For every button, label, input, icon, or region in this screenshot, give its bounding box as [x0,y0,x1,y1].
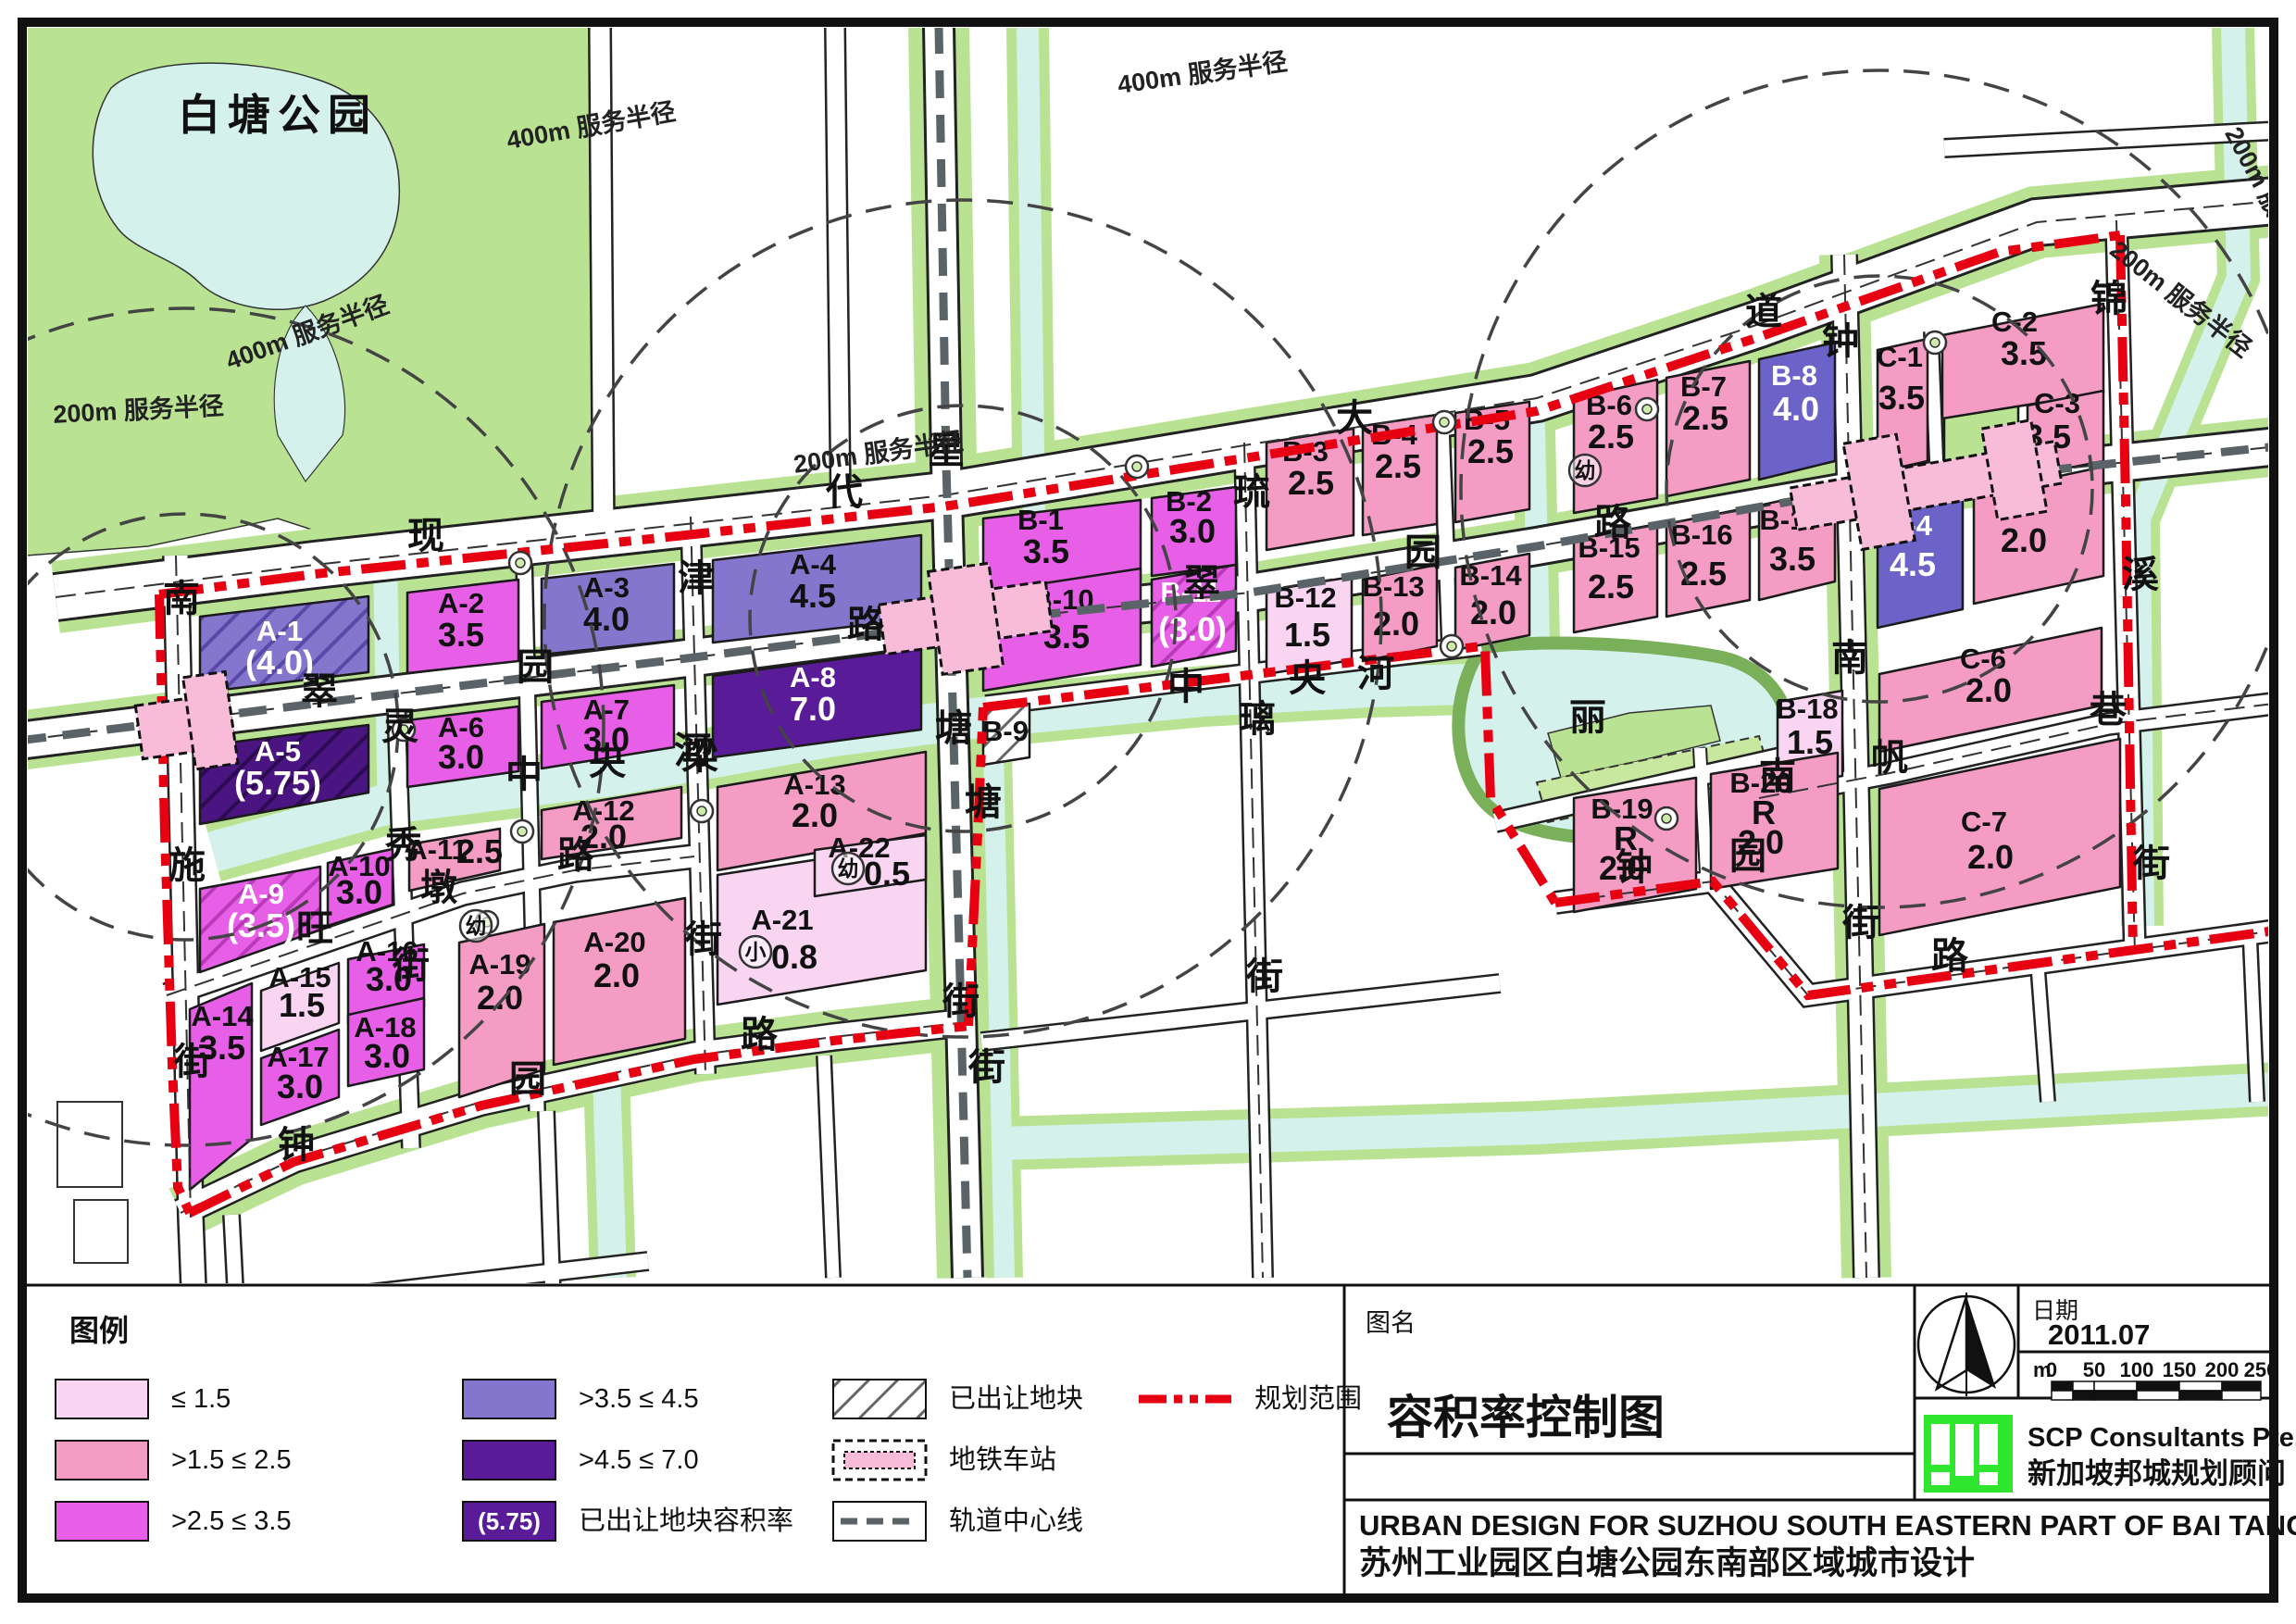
map-canvas: A-1(4.0)A-23.5A-34.0A-44.5A-5(5.75)A-63.… [0,0,2296,1624]
parcel-far-C-5: 2.0 [2001,521,2047,559]
banner-cn: 苏州工业园区白塘公园东南部区域城市设计 [1359,1545,1975,1581]
road-name-char-36: 街 [942,981,980,1022]
parcel-far-A-2: 3.5 [438,616,484,654]
road-name-char-50: 塘 [965,782,1002,823]
parcel-far-A-19: 2.0 [477,979,523,1017]
far-control-map-sheet: { "map": { "park_label": "白塘公园", "parcel… [0,0,2296,1624]
parcel-code-C-1: C-1 [1877,341,1923,373]
road-name-char-48: 巷 [2089,690,2128,731]
parcel-far-A-3: 4.0 [583,600,630,638]
parcel-code-C-2: C-2 [1991,306,2038,338]
road-name-char-4: 翠 [301,671,338,712]
facility-badge-text-A-22: 幼 [838,856,859,881]
legend-label-rail: 轨道中心线 [949,1505,1083,1536]
parcel-far-A-13: 2.0 [792,796,838,834]
legend-label-sold-far: 已出让地块容积率 [579,1505,793,1536]
road-name-char-16: 旺 [296,908,333,949]
parcel-code-B-16: B-16 [1670,518,1732,551]
legend-label-le15: ≤ 1.5 [171,1384,231,1414]
svg-text:250: 250 [2244,1358,2278,1381]
parcel-code-A-2: A-2 [438,587,484,619]
legend-label-25-35: >2.5 ≤ 3.5 [171,1506,292,1536]
legend-label-45-70: >4.5 ≤ 7.0 [579,1445,699,1475]
parcel-code-A-8: A-8 [790,661,836,693]
road-name-char-28: 灵 [381,706,418,747]
facility-badge-text-B-6: 幼 [1575,458,1596,482]
parcel-far-A-17: 3.0 [277,1068,323,1106]
road-name-char-13: 中 [1167,667,1204,707]
facility-badge-text-A-19: 幼 [466,914,487,938]
svg-text:200: 200 [2205,1358,2240,1381]
road-name-char-5: 园 [517,647,554,688]
parcel-far-A-10: 3.0 [336,873,382,911]
parcel-code-B-8: B-8 [1771,359,1817,392]
drawing-name-label: 图名 [1366,1309,1416,1337]
road-name-char-32: 梁 [681,736,718,777]
legend-label-35-45: >3.5 ≤ 4.5 [579,1384,699,1414]
road-name-char-10: 中 [505,755,543,795]
parcel-far-A-15: 1.5 [279,986,325,1024]
park-label: 白塘公园 [178,91,378,139]
road-name-char-18: 路 [557,835,595,876]
drawing-title: 容积率控制图 [1387,1392,1665,1443]
svg-text:100: 100 [2120,1358,2154,1381]
parcel-far-C-7: 2.0 [1967,838,2014,876]
parcel-far-C-2: 3.5 [2001,334,2047,372]
parcel-code-B-9: B-9 [982,715,1029,747]
parcel-far-B-1: 3.5 [1023,532,1069,570]
road-name-char-42: 街 [1841,903,1879,943]
legend-label-15-25: >1.5 ≤ 2.5 [171,1445,292,1475]
road-name-char-31: 津 [678,558,715,599]
bus-stop-dot-0 [516,558,525,568]
legend-title: 图例 [69,1314,129,1347]
parcel-code-A-1: A-1 [256,615,303,647]
parcel-far-B-17: 3.5 [1769,540,1816,578]
road-name-char-49: 丽 [1569,697,1606,738]
parcel-far-C-6: 2.0 [1965,671,2012,709]
banner-en: URBAN DESIGN FOR SUZHOU SOUTH EASTERN PA… [1359,1509,2296,1542]
parcel-far-A-21: 0.8 [771,938,817,976]
parcel-far-A-22: 0.5 [864,855,910,893]
date-value: 2011.07 [2048,1318,2150,1351]
scp-logo [1924,1415,2013,1493]
legend-label-boundary: 规划范围 [1254,1383,1362,1414]
road-name-char-39: 街 [1245,956,1283,997]
legend-label-station: 地铁车站 [949,1444,1056,1475]
road-name-char-6: 路 [847,605,885,645]
road-name-char-20: 园 [509,1059,546,1100]
parcel-code-A-9: A-9 [238,878,284,910]
road-name-char-24: 路 [1931,936,1969,977]
road-name-char-9: 路 [1594,503,1632,543]
parcel-far-B-2: 3.0 [1169,512,1216,550]
parcel-far-B-3: 2.5 [1288,464,1334,502]
parcel-far-A-20: 2.0 [593,956,640,994]
road-name-char-14: 央 [1289,658,1327,699]
parcel-far-A-6: 3.0 [438,738,484,776]
road-name-char-29: 秀 [384,825,422,866]
road-name-char-1: 代 [825,472,863,513]
legend-swatch-station-inner [844,1452,915,1468]
bus-stop-dot-10 [697,806,706,816]
parcel-far-C-4: 4.5 [1890,545,1936,583]
parcel-far-B-12: 1.5 [1284,616,1330,654]
company-en: SCP Consultants Pte. Ltd. [2028,1423,2296,1453]
parcel-far-B-7: 2.5 [1682,399,1728,437]
road-name-char-41: 南 [1831,638,1868,679]
bus-stop-dot-3 [1132,462,1142,471]
legend: 图例 ≤ 1.5 >1.5 ≤ 2.5 >2.5 ≤ 3.5 >3.5 ≤ 4.… [56,1314,1362,1541]
svg-text:0: 0 [2046,1358,2057,1381]
road-name-char-44: 溪 [2122,555,2159,595]
road-name-char-26: 施 [168,845,206,886]
parcel-far-A-8: 7.0 [790,690,836,728]
parcel-code-C-6: C-6 [1960,643,2006,675]
svg-text:150: 150 [2163,1358,2197,1381]
parcel-code-A-4: A-4 [790,548,837,581]
legend-swatch-sold-parcel [833,1380,926,1418]
parcel-far-B-16: 2.5 [1680,555,1727,593]
bus-stop-dot-1 [518,827,527,836]
parcel-code-C-3: C-3 [2034,387,2080,419]
svg-text:50: 50 [2083,1358,2105,1381]
parcel-code-A-5: A-5 [255,735,301,768]
parcel-far-B-4: 2.5 [1375,447,1421,485]
road-name-char-40: 钟 [1822,321,1859,362]
road-name-char-7: 翠 [1183,563,1220,604]
bus-stop-dot-4 [1440,418,1449,427]
parcel-far-B-5: 2.5 [1467,432,1514,470]
parcel-code-A-21: A-21 [751,904,813,936]
bus-stop-dot-8 [1930,338,1940,347]
bus-stop-dot-6 [1642,405,1652,414]
facility-badge-text-A-21: 小 [745,940,767,964]
road-name-char-3: 道 [1745,292,1782,332]
parcel-code-B-13: B-13 [1362,570,1424,603]
north-compass [1918,1293,2015,1396]
road-name-char-30: 街 [392,945,430,986]
parcel-code-A-20: A-20 [583,926,645,958]
road-name-char-33: 街 [684,919,722,960]
road-name-char-22: 钟 [1616,847,1653,888]
road-name-char-21: 路 [741,1015,779,1056]
parcel-code-B-1: B-1 [1017,504,1064,536]
road-name-char-45: 街 [2132,843,2170,884]
road-name-char-43: 锦 [2090,279,2128,319]
parcel-far-C-1: 3.5 [1878,379,1925,417]
legend-swatch-25-35 [56,1502,148,1541]
road-name-char-17: 墩 [420,868,457,908]
parcel-far-A-18: 3.0 [364,1037,410,1075]
road-name-char-35: 塘 [935,708,972,749]
parcel-far-A-5: (5.75) [234,764,321,802]
parcel-code-A-14: A-14 [191,1000,254,1032]
road-name-char-11: 央 [589,742,627,782]
parcel-far-B-6: 2.5 [1588,418,1634,456]
legend-label-sold-parcel: 已出让地块 [949,1383,1083,1414]
parcel-code-C-7: C-7 [1961,806,2007,838]
bus-stop-dot-7 [1662,814,1671,823]
road-name-char-38: 璃 [1239,699,1276,740]
legend-swatch-45-70 [463,1441,555,1480]
legend-swatch-35-45 [463,1380,555,1418]
road-name-char-37: 琉 [1233,472,1270,513]
legend-swatch-le15 [56,1380,148,1418]
parcel-far-A-11: 2.5 [456,832,503,870]
parcel-code-A-3: A-3 [583,571,630,604]
road-name-char-51: 街 [967,1047,1005,1088]
road-name-char-23: 园 [1729,836,1766,877]
road-name-char-8: 园 [1404,532,1441,573]
parcel-far-B-8: 4.0 [1773,390,1819,428]
road-name-char-15: 河 [1357,654,1394,694]
road-name-char-47: 帆 [1871,738,1908,779]
road-name-char-0: 现 [407,516,444,556]
scale-bar: m 0 50 100 150 200 250 [2033,1358,2277,1400]
road-name-char-46: 南 [1759,756,1796,797]
road-name-char-2: 大 [1336,398,1373,439]
legend-swatch-sold-far-text: (5.75) [478,1507,541,1535]
company-cn: 新加坡邦城规划顾问 [2028,1457,2286,1490]
parcel-far-B-15: 2.5 [1588,568,1634,606]
road-name-char-27: 街 [173,1042,211,1082]
bus-stop-dot-5 [1447,642,1456,651]
legend-swatch-15-25 [56,1441,148,1480]
road-name-char-25: 南 [163,579,200,619]
road-name-char-19: 钟 [278,1125,315,1166]
parcel-far-B-11: (3.0) [1158,610,1227,648]
parcel-far-A-4: 4.5 [790,577,836,615]
title-block: 图名 容积率控制图 日期 2011.07 m 0 50 100 150 200 … [1344,1285,2296,1598]
parcel-code-B-7: B-7 [1680,370,1727,403]
